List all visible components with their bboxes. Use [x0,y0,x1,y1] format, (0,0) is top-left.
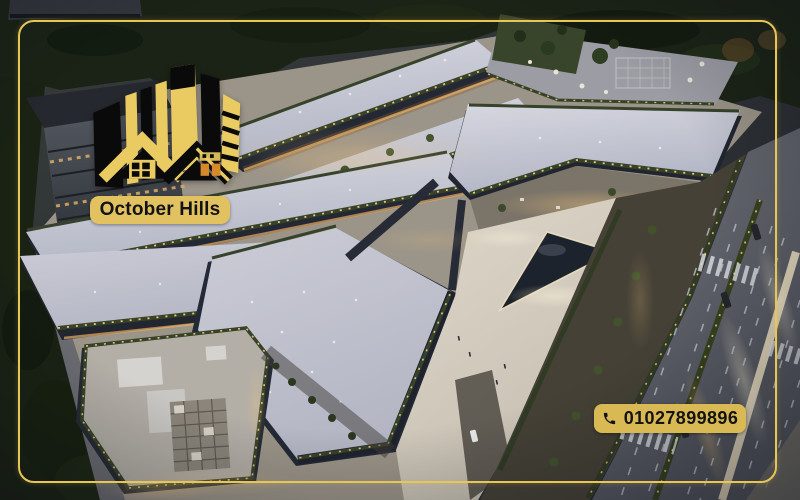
october-hills-logo [82,54,242,196]
phone-badge: 01027899896 [594,404,746,433]
real-estate-ad-poster: October Hills 01027899896 [0,0,800,500]
brand-name-label: October Hills [100,199,221,221]
phone-number-label: 01027899896 [624,408,739,429]
brand-name-badge: October Hills [90,196,230,224]
buildings-logo-icon [82,54,242,196]
phone-icon [602,411,617,426]
